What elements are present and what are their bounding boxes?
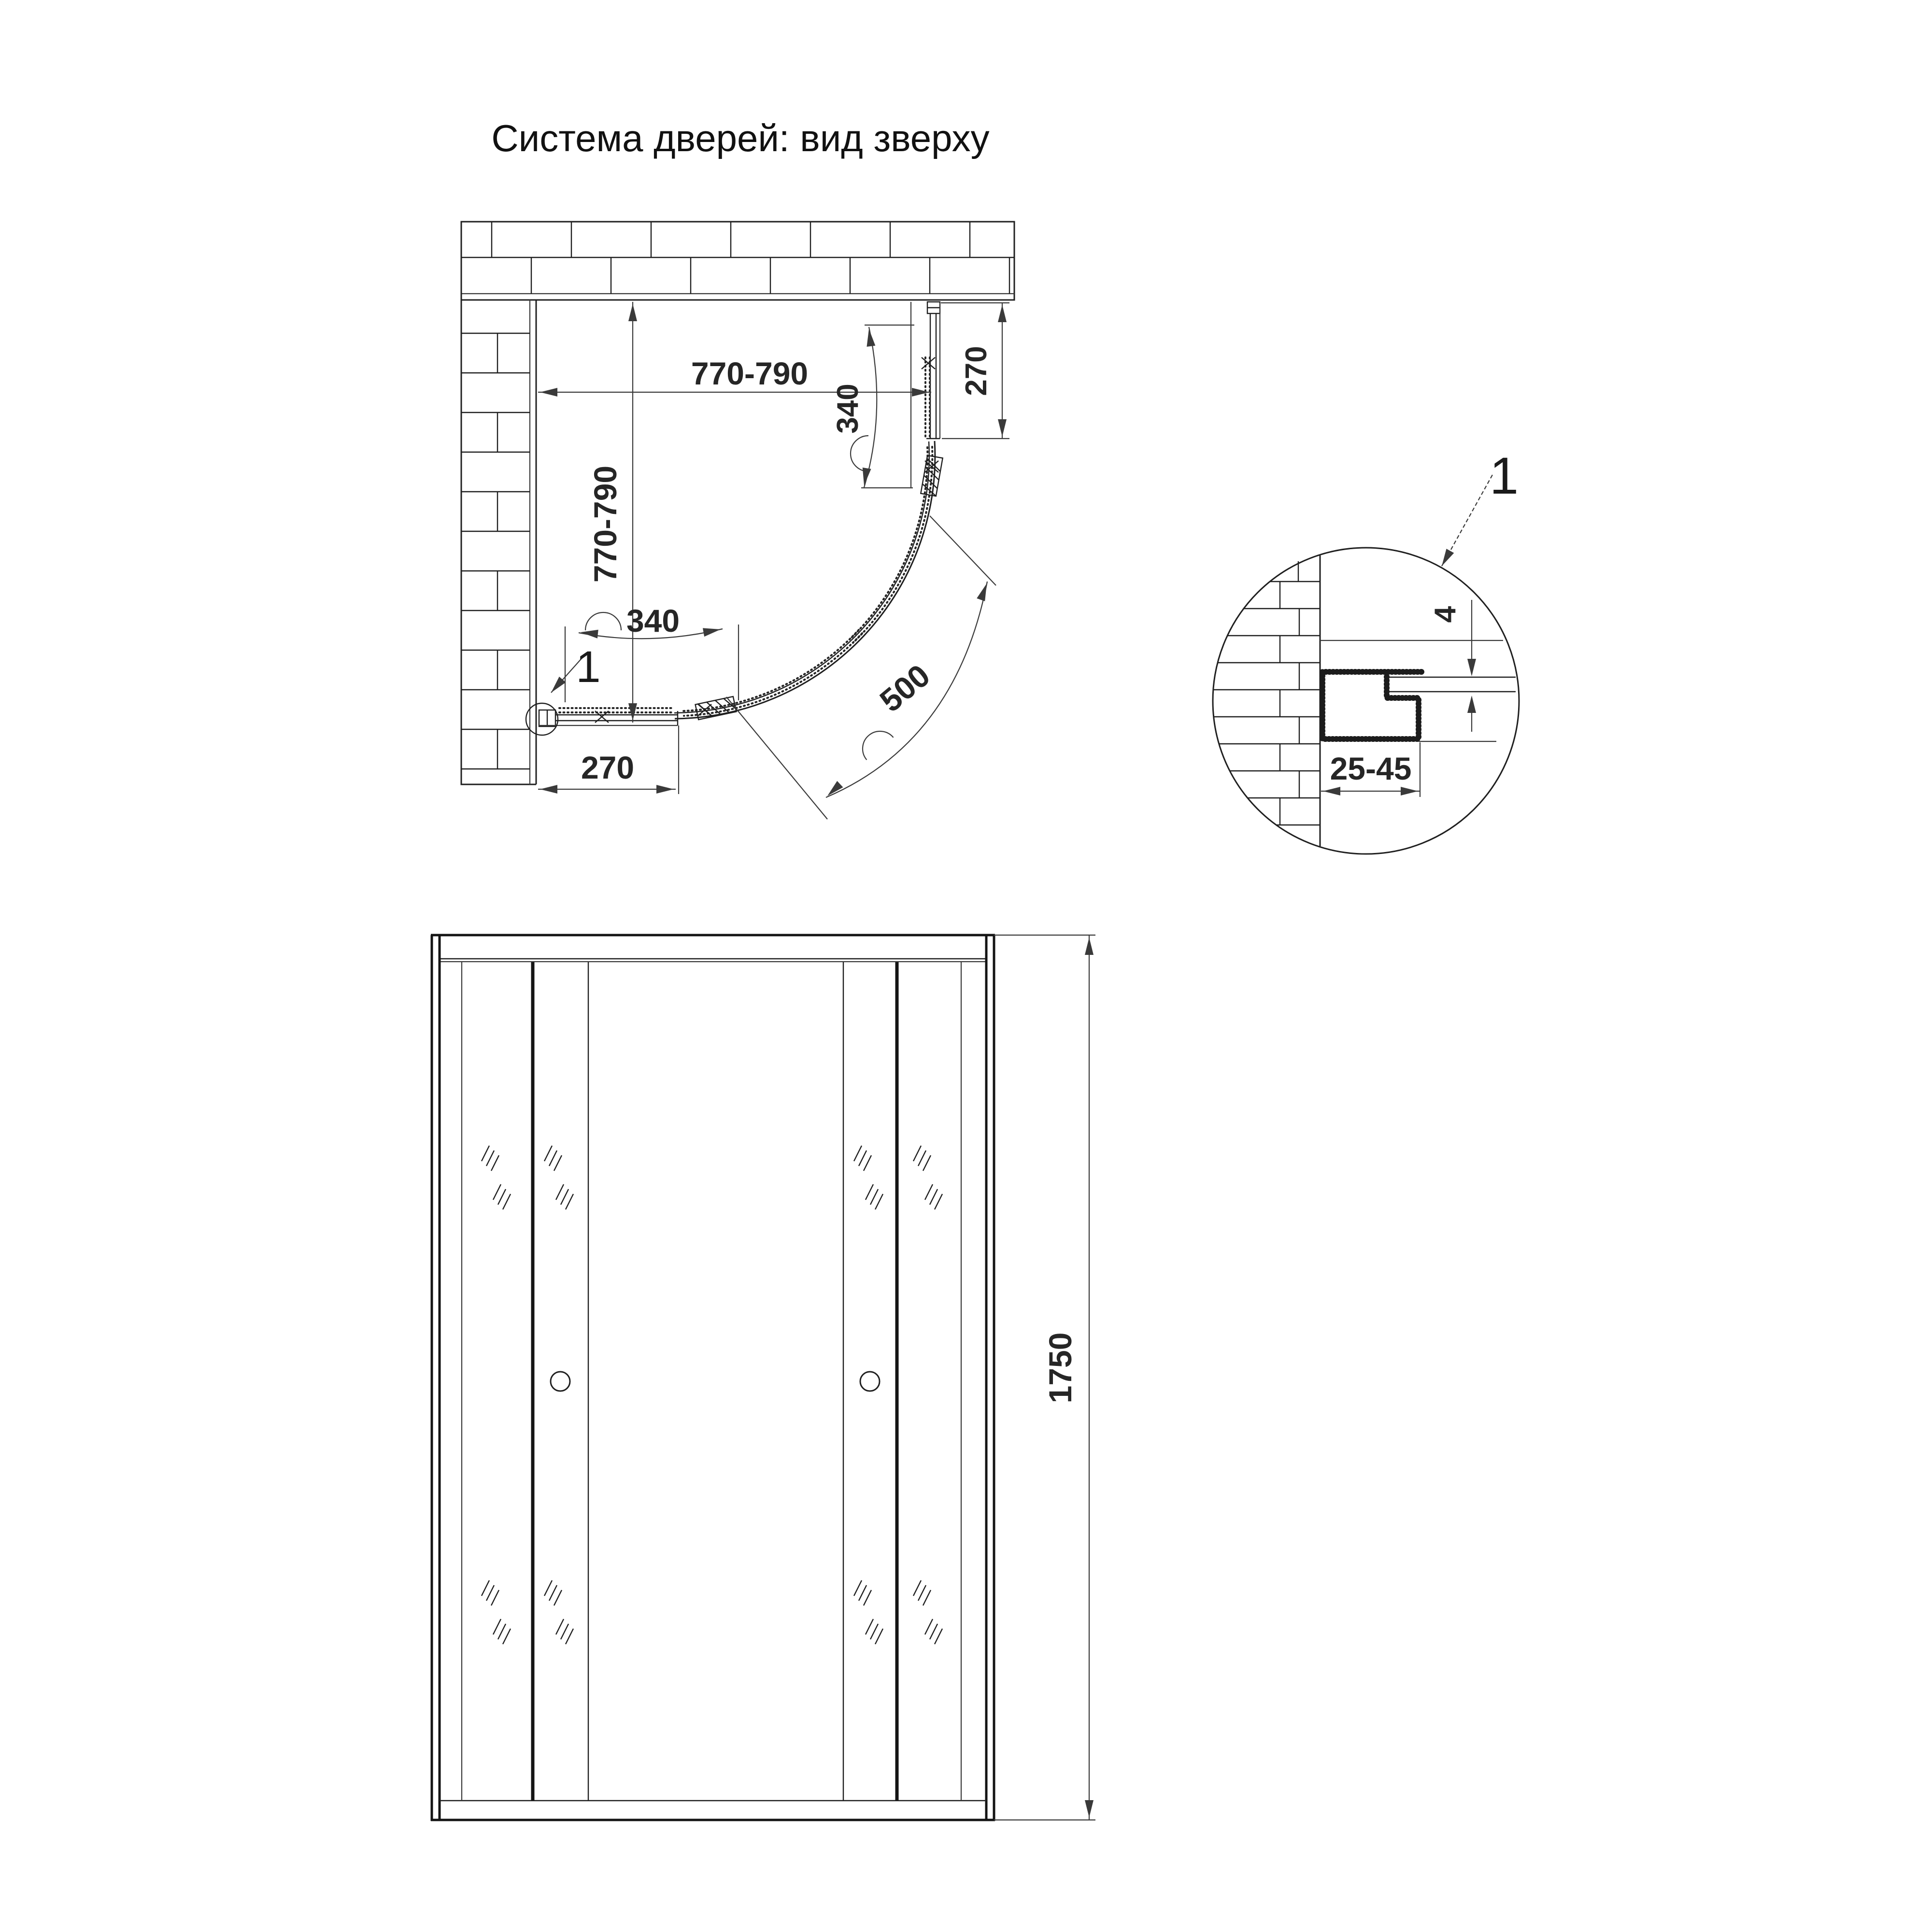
dim-profile-depth: 25-45 — [1321, 742, 1420, 797]
dim-fixed-bottom-label: 270 — [581, 750, 634, 785]
wall-band-outline — [461, 222, 536, 784]
dim-height: 1750 — [994, 935, 1095, 1820]
arrowhead-icon — [540, 785, 557, 794]
door-handle-right — [860, 1372, 880, 1391]
dim-glass-thickness: 4 — [1429, 600, 1476, 732]
brick-joints — [1280, 561, 1299, 825]
clamp-cross-marks — [595, 357, 938, 723]
glass-panel-lines — [555, 715, 678, 721]
glass-panel-lines — [1387, 677, 1516, 692]
dim-arc-opening: 500 — [726, 516, 996, 819]
detail-leader: 1 — [1438, 446, 1519, 568]
front-frame — [431, 935, 995, 1821]
brick-joints-row1 — [492, 222, 970, 257]
arc-length-symbol — [851, 436, 868, 471]
arrowhead-icon — [998, 419, 1007, 437]
arrowhead-icon — [628, 304, 637, 321]
door-overlap-lines — [559, 708, 674, 712]
callout-number: 1 — [1490, 446, 1519, 505]
dim-width: 770-790 — [538, 355, 931, 397]
glass-mark — [854, 1146, 883, 1209]
arc-length-symbol — [585, 612, 621, 630]
door-handle-left — [551, 1372, 570, 1391]
glass-mark — [913, 1580, 942, 1644]
arrowhead-icon — [1323, 787, 1340, 796]
arrowhead-icon — [1467, 696, 1476, 713]
dim-door-bottom-label: 340 — [626, 603, 680, 639]
detail-circle-mark — [526, 703, 558, 735]
arc-length-symbol — [855, 724, 893, 760]
right-wall-profile — [986, 935, 994, 1821]
dim-door-right: 340 — [831, 302, 914, 488]
panel-frame-lines — [462, 962, 961, 1801]
detail-boundary-circle — [1213, 548, 1519, 854]
dim-fixed-right-label: 270 — [960, 346, 993, 396]
arrowhead-icon — [703, 625, 722, 637]
callout-number: 1 — [576, 642, 600, 692]
wall-profile-section — [1322, 672, 1421, 739]
dim-glass-label: 4 — [1429, 606, 1462, 623]
dim-depth-label: 770-790 — [587, 466, 623, 582]
arrowhead-icon — [1467, 659, 1476, 676]
top-view: 770-790 770-790 270 270 — [461, 222, 1014, 819]
ext-lines — [1320, 640, 1503, 741]
drawing-title: Система дверей: вид зверху — [491, 117, 989, 159]
dim-width-label: 770-790 — [691, 355, 808, 391]
dim-door-right-label: 340 — [831, 384, 865, 433]
left-wall-profile — [432, 935, 440, 1821]
brick-wall-top — [461, 222, 1014, 300]
glass-mark — [544, 1146, 573, 1209]
ext-lines — [726, 516, 996, 819]
arrowhead-icon — [540, 388, 557, 397]
glass-panel-lines — [930, 313, 936, 439]
door-glass-arc — [684, 633, 862, 716]
wall-band-outline — [461, 222, 1014, 300]
arrowhead-icon — [1438, 549, 1454, 568]
dim-fixed-right: 270 — [941, 303, 1009, 439]
brick-row-lines — [461, 333, 530, 769]
brick-joints-row2 — [531, 257, 1009, 294]
glass-mark — [482, 1580, 511, 1644]
sliding-door-bottom — [559, 630, 862, 716]
glass-mark — [544, 1580, 573, 1644]
curved-dim-line — [864, 327, 877, 487]
arrowhead-icon — [1085, 938, 1094, 955]
dim-height-label: 1750 — [1042, 1333, 1078, 1404]
arrowhead-icon — [977, 582, 991, 601]
glass-hatch-marks — [482, 1146, 942, 1644]
fixed-panel-right — [926, 302, 940, 439]
front-view: 1750 — [431, 935, 1095, 1821]
arrowhead-icon — [1085, 1800, 1094, 1818]
detail-view: 4 25-45 1 — [1213, 446, 1519, 854]
track-arc-inner — [674, 441, 929, 713]
glass-mark — [854, 1580, 883, 1644]
arrowhead-icon — [1401, 787, 1418, 796]
dim-arc-opening-label: 500 — [873, 657, 937, 719]
glass-mark — [913, 1146, 942, 1209]
brick-wall-left — [461, 222, 536, 784]
drawing-canvas: Система дверей: вид зверху — [0, 0, 1932, 1932]
door-glass-arc — [850, 447, 927, 639]
glass-mark — [482, 1146, 511, 1209]
dim-fixed-bottom: 270 — [538, 725, 679, 794]
arrowhead-icon — [998, 305, 1007, 322]
door-overlap-lines — [925, 357, 930, 437]
detail-brick-wall — [1213, 555, 1320, 846]
arrowhead-icon — [656, 785, 674, 794]
brick-row-lines — [1213, 582, 1320, 825]
dim-profile-label: 25-45 — [1330, 751, 1412, 786]
arrowhead-icon — [912, 388, 929, 397]
